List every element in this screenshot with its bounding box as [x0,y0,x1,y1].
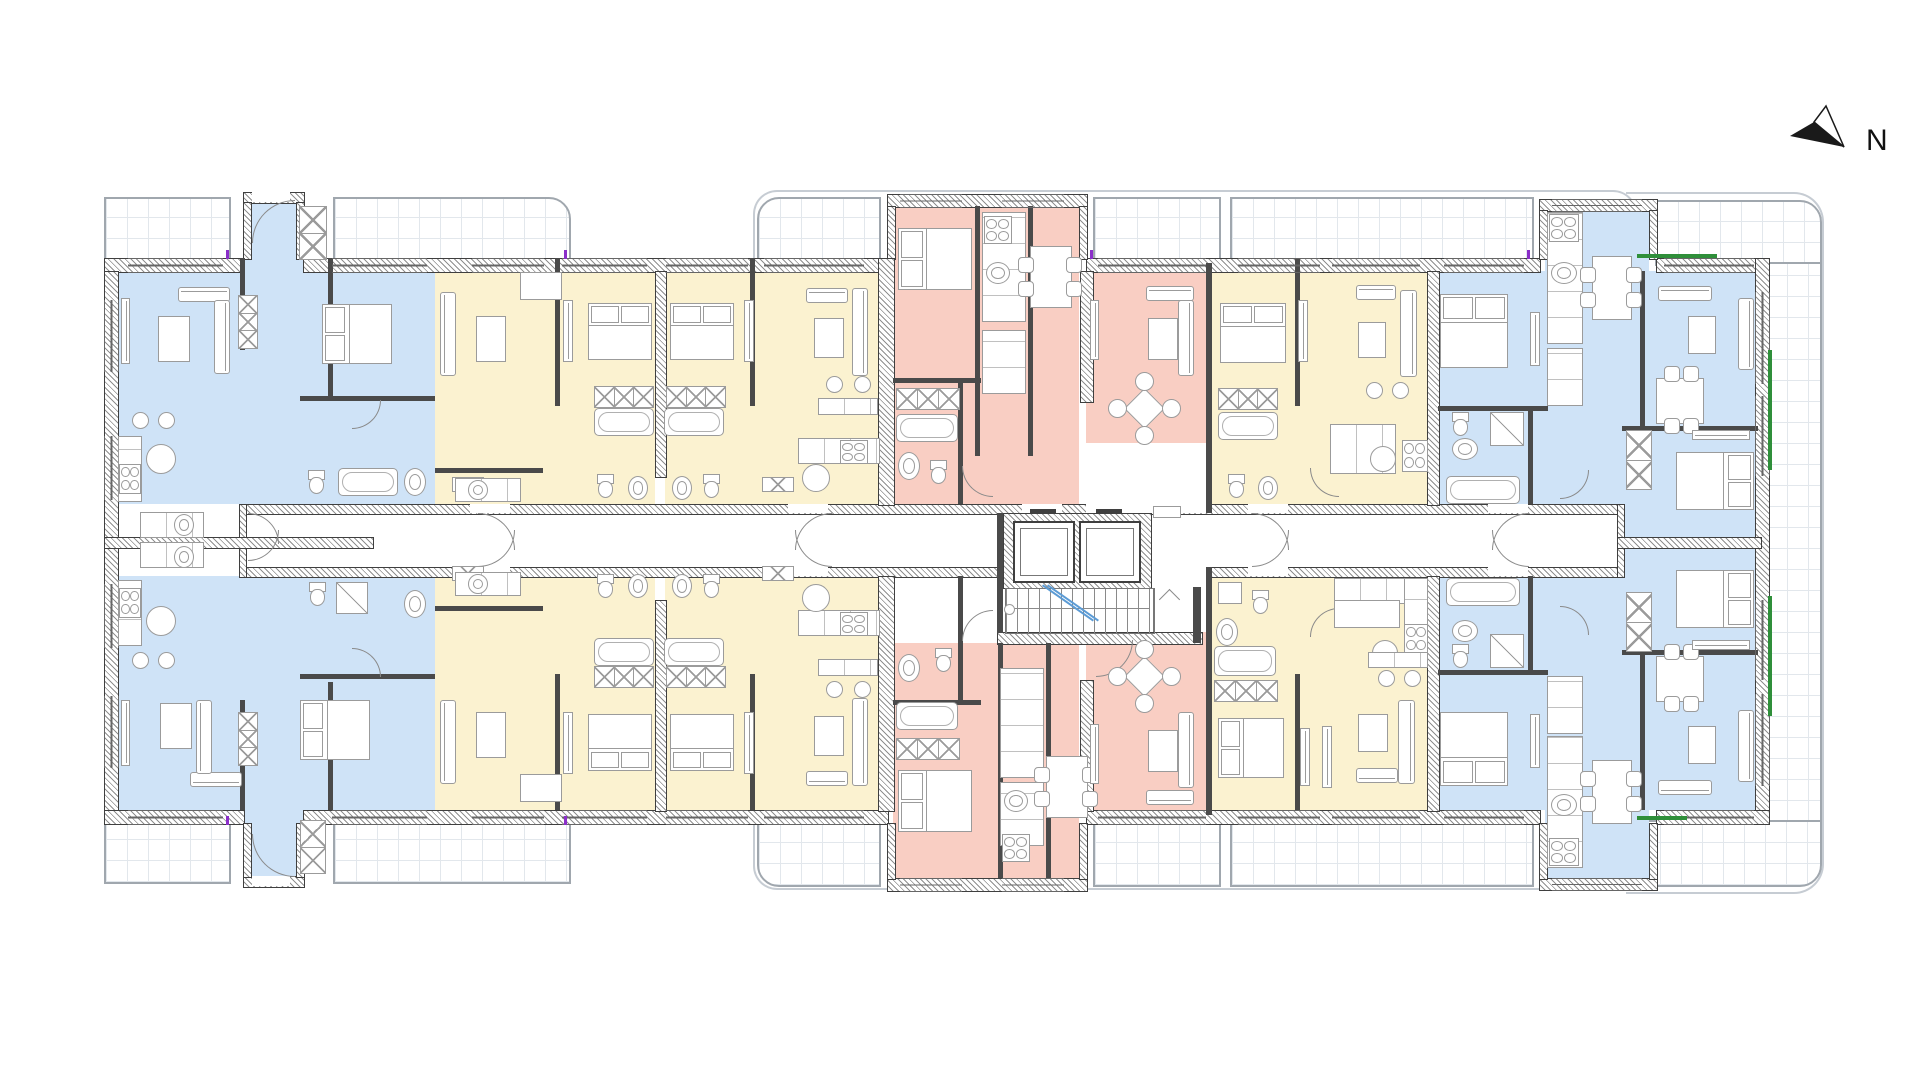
furniture-sink [1216,618,1238,646]
furniture-dining45 [1116,380,1170,434]
stove-burner [130,591,139,601]
bed-blanket-line [1221,326,1285,327]
dining-chair [1034,791,1050,807]
dining-chair [1018,281,1034,297]
exterior-wall [1617,537,1762,549]
exterior-wall [887,206,896,260]
bed-blanket-line [589,748,651,749]
sofa-back-line [1359,289,1393,290]
furniture-rtable [1370,446,1396,472]
stove-burner [854,625,865,634]
sofa-back-line [1189,303,1190,373]
partition-wall [1206,567,1212,815]
dining-table [1592,760,1632,824]
dining45-table [1123,655,1164,696]
furniture-bed [1440,294,1508,368]
furniture-counter [818,398,878,415]
furniture-sofa [1738,710,1754,782]
dining45-chair [1135,426,1154,445]
furniture-strip [1090,300,1099,360]
exterior-wall [1427,271,1440,506]
strip-line [749,715,750,771]
bed-pillow [303,731,323,757]
wardrobe-cell [687,667,707,687]
partition-wall [1193,587,1201,643]
dining-chair [1626,796,1642,812]
bed-pillow [591,752,619,769]
furniture-counter [140,542,204,568]
wardrobe-cell [1219,389,1239,409]
furniture-stool [132,652,149,669]
bed-pillow [673,306,701,323]
wardrobe-cell [1239,389,1259,409]
sofa-back-line [809,292,845,293]
vent-shaft-x [763,567,793,580]
balcony [1093,197,1221,262]
exterior-wall [1427,576,1440,812]
bed-pillow [1221,749,1240,775]
furniture-sofa [1738,298,1754,370]
stove-burner [998,231,1009,241]
furniture-bed [588,714,652,771]
stove-burner [842,615,853,624]
furniture-sofa [806,288,848,303]
wall-opening [252,876,290,886]
wc-bowl [598,481,613,498]
green-accent [1637,816,1687,820]
wardrobe-cell [939,389,959,409]
wardrobe-cell [897,739,918,759]
stove-burner [998,219,1009,229]
bed-pillow [1728,482,1751,507]
sofa-back-line [193,782,239,783]
bed-pillow [703,306,731,323]
wc-bowl [936,655,951,672]
wardrobe-cell [615,667,635,687]
bed-pillow [1443,297,1473,319]
furniture-bed [670,714,734,771]
bed-pillow [1221,721,1240,747]
furniture-strip [121,298,130,364]
bed-pillow [325,335,345,361]
furniture-stove [119,464,141,494]
furniture-sink [404,468,426,496]
furniture-wc [597,474,614,498]
wall-opening [788,504,828,513]
sink-basin [1458,443,1472,455]
sink-basin [473,485,484,496]
furniture-sofa [440,700,456,784]
furniture-stove [1002,834,1030,862]
window [472,258,544,273]
dining-table [1592,256,1632,320]
sink-basin [991,267,1004,279]
furniture-bed [898,228,972,290]
bed-blanket-line [589,325,651,326]
furniture-wc [703,474,720,498]
furniture-sofa [1400,290,1417,377]
furniture-ltable [1148,730,1178,772]
elevator-shaft [1013,521,1075,583]
strip-line [568,303,569,359]
partition-wall [893,378,981,383]
furniture-rtable [146,444,176,474]
furniture-strip [1530,312,1540,366]
wardrobe-cell [897,389,918,409]
window [1238,258,1320,273]
wardrobe-cell [1257,681,1277,701]
partition-wall [1528,576,1533,674]
tub-inner [900,418,954,438]
window [332,258,427,273]
strip-line [1095,727,1096,781]
furniture-sofa [1178,300,1194,376]
vent-shaft [762,477,794,492]
bed-pillow [1223,306,1252,323]
furniture-shower [1490,412,1524,446]
bed-pillow [1443,761,1473,783]
sink-basin [409,474,421,490]
furniture-bed [588,303,652,360]
bed-pillow [703,752,731,769]
wc-bowl [931,467,946,484]
exterior-wall [1079,823,1088,880]
sofa-back-line [1661,290,1709,291]
stove-burner [1406,627,1415,637]
window [332,810,427,825]
bed-blanket-line [926,771,927,831]
furniture-wc [1252,590,1269,614]
exterior-wall [243,823,252,878]
furniture-bed [898,770,972,832]
bed-blanket-line [1723,453,1724,509]
furniture-tub [594,638,654,666]
elevator-door [1096,509,1122,514]
sofa-back-line [444,703,445,781]
furniture-sofa [1658,780,1712,795]
stove-burner [842,443,853,452]
bed-pillows [303,703,323,757]
partition-wall [975,206,980,456]
sink-basin [677,481,688,494]
stove-burner [1551,217,1563,227]
dining45-chair [1108,667,1127,686]
stair-walk-start [1004,604,1015,615]
furniture-wardrobe [666,386,726,408]
wardrobe-cell [1627,431,1651,461]
furniture-ltable [158,316,190,362]
furniture-sofa [852,698,868,786]
furniture-sofa [190,772,242,787]
window [1664,258,1754,273]
bed-pillows [1221,721,1240,775]
furniture-rtable [802,464,830,492]
wardrobe-cell [667,387,687,407]
tub-inner [1450,480,1516,500]
bed-pillow [325,307,345,333]
sofa-back-line [1749,301,1750,367]
marker-tick [564,250,567,259]
dining-table [1046,756,1088,818]
furniture-stool [1404,670,1421,687]
dining45-table [1123,387,1164,428]
dining-chair [1664,418,1680,434]
tub-inner [668,412,720,432]
elevator-cab [1086,528,1134,576]
wardrobe-cell [918,739,939,759]
bed-pillows [673,306,731,323]
furniture-counter [818,659,878,676]
bed-blanket-line [671,325,733,326]
furniture-wc [1452,412,1469,436]
wardrobe-cell [239,731,257,749]
furniture-tub [594,408,654,436]
furniture-counter [1368,652,1428,668]
dining-table [1656,656,1704,702]
tub-inner [668,642,720,662]
marker-tick [1090,250,1093,259]
balcony [757,197,881,262]
balcony [1764,262,1822,824]
furniture-ltable [476,316,506,362]
furniture-sink [628,476,648,500]
wardrobe-cell [939,739,959,759]
furniture-sink [672,476,692,500]
furniture-wardrobe [1218,388,1278,410]
furniture-stove [1402,440,1428,472]
furniture-wardrobe [300,820,326,874]
furniture-shower [1490,634,1524,668]
furniture-wc [935,648,952,672]
compass [1786,100,1876,156]
bed-pillows [325,307,345,361]
furniture-ltable [814,716,844,756]
door-swing [962,610,993,641]
balcony [333,197,571,262]
tub-inner [598,642,650,662]
stove-burner [854,443,865,452]
wardrobe-cell [239,296,257,314]
furniture-wc [930,460,947,484]
wardrobe-cell [239,713,257,731]
bed-pillow [901,260,923,287]
sofa-back-line [1749,713,1750,779]
furniture-sink [986,262,1010,284]
wardrobe-cell [239,331,257,348]
furniture-wardrobe [1214,680,1278,702]
furniture-stool [158,412,175,429]
bed-pillow [901,802,923,829]
stove-burner [1404,457,1414,468]
sink-basin [677,579,688,592]
strip-line [126,703,127,763]
marker-tick [564,816,567,825]
furniture-tub [1218,412,1278,440]
balcony [1637,820,1822,887]
exterior-wall [245,504,1619,515]
window [1002,878,1064,892]
wc-bowl [1229,481,1244,498]
sofa-back-line [1359,778,1395,779]
bed-pillow [1728,455,1751,480]
stove-burner [1416,627,1425,637]
furniture-counter [1547,676,1583,734]
furniture-stove [984,216,1012,244]
furniture-counter [1404,578,1428,626]
window [1444,810,1524,825]
wc-bowl [598,581,613,598]
wardrobe-cell [1627,461,1651,490]
wc-bowl [704,581,719,598]
sofa-back-line [863,701,864,783]
dining-chair [1580,796,1596,812]
furniture-bed [1676,452,1754,510]
dining45-chair [1162,399,1181,418]
bed-pillows [1443,761,1505,783]
balcony [1093,822,1221,887]
furniture-sofa [1146,286,1194,301]
wardrobe-cell [687,387,707,407]
furniture-wc [1228,474,1245,498]
stove-burner [121,591,130,601]
furniture-strip [1090,724,1099,784]
furniture-wc [308,470,325,494]
stove-burner [121,604,130,614]
window [1098,258,1206,273]
dining-chair [1066,281,1082,297]
furniture-sink [1258,476,1278,500]
elevator-door [1030,509,1056,514]
wardrobe-cell [300,207,326,234]
stove-burner [1016,849,1027,859]
stair-landing-line [1153,588,1154,632]
furniture-tub [664,408,724,436]
wardrobe-cell [300,234,326,260]
furniture-stool [158,652,175,669]
wc-bowl [1453,419,1468,436]
sink-basin [1263,481,1274,494]
dining45-chair [1135,372,1154,391]
stove-burner [854,615,865,624]
furniture-stool [1378,670,1395,687]
furniture-dining45 [1116,648,1170,702]
sofa-back-line [200,703,201,771]
furniture-strip [1322,726,1332,788]
furniture-counter [1547,348,1583,406]
partition-wall [435,606,543,611]
stove-burner [1415,457,1425,468]
bed-pillows [1443,297,1505,319]
furniture-strip [1692,430,1750,440]
exterior-wall [243,202,252,260]
furniture-strip [1300,728,1310,786]
wall-opening [1488,567,1528,576]
furniture-ltable [476,712,506,758]
furniture-dining [1578,746,1644,836]
window [1332,258,1420,273]
furniture-wardrobe [594,666,654,688]
furniture-sofa [1146,790,1194,805]
green-accent [1768,350,1772,470]
furniture-tub [664,638,724,666]
furniture-stove [119,588,141,618]
furniture-ltable [520,774,562,802]
furniture-strip [1298,300,1308,362]
stove-burner [1564,841,1576,851]
furniture-sofa [1356,285,1396,300]
furniture-sofa [1658,286,1712,301]
bed-pillow [1254,306,1283,323]
wall-opening [788,567,828,576]
wardrobe-cell [1236,681,1257,701]
wc-bowl [1453,651,1468,668]
green-accent [1637,254,1717,258]
stair-up-chevron [1159,589,1180,610]
tub-inner [598,412,650,432]
furniture-bed [1218,718,1284,778]
wardrobe-cell [706,387,725,407]
bed-pillow [1728,600,1751,625]
strip-line [749,303,750,359]
furniture-rtable [802,584,830,612]
sink-basin [1221,624,1233,640]
window [562,810,647,825]
window [900,878,962,892]
furniture-strip [744,712,754,774]
balcony [757,822,881,887]
furniture-ltable [1688,316,1716,354]
window [764,810,864,825]
bed-blanket-line [349,305,350,363]
elevator-shaft [1079,521,1141,583]
partition-wall [435,468,543,473]
wc-bowl [310,589,325,606]
furniture-ltable [1358,322,1386,358]
window [900,194,962,208]
furniture-sofa [440,292,456,376]
window [104,300,119,372]
stove-burner [130,467,139,477]
sofa-back-line [181,291,227,292]
window [1444,258,1524,273]
window [128,258,223,273]
furniture-dining [1578,242,1644,332]
furniture-wardrobe [896,738,960,760]
vent-shaft-x [763,478,793,491]
dining-chair [1580,267,1596,283]
sofa-back-line [809,781,845,782]
bed-pillow [621,306,649,323]
sofa-back-line [1410,703,1411,781]
bed-blanket-line [1441,757,1507,758]
sink-basin [903,660,915,676]
dining-chair [1626,292,1642,308]
dining-chair [1683,366,1699,382]
furniture-sink [468,574,488,594]
stove-burner [1004,849,1015,859]
sink-basin [1557,799,1571,811]
furniture-stool [854,376,871,393]
dining45-chair [1135,640,1154,659]
stove-burner [986,231,997,241]
floor-plan: N [0,0,1920,1080]
furniture-dining [1642,364,1716,436]
furniture-stool [854,681,871,698]
wall-opening [1488,504,1528,513]
furniture-wc [309,582,326,606]
bed-pillow [1728,573,1751,598]
dining-chair [1664,644,1680,660]
